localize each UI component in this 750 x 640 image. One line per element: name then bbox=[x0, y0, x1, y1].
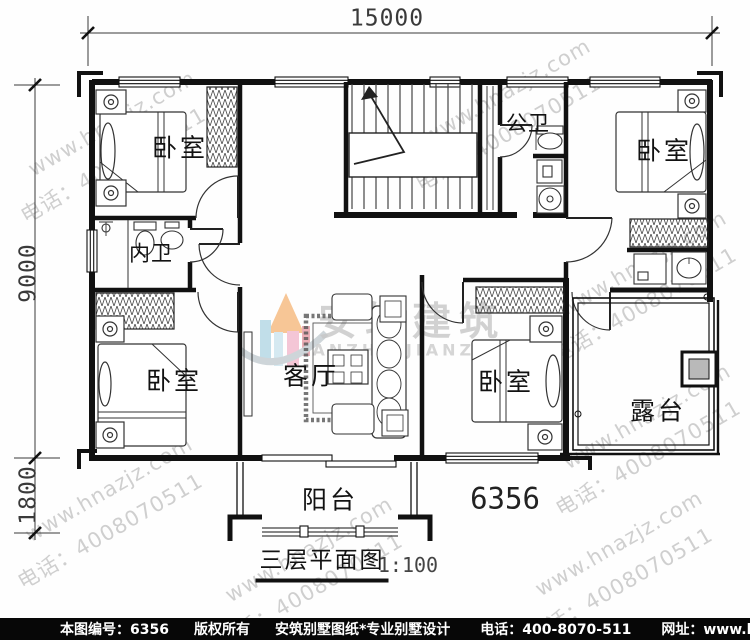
room-label-bedroom-mid-left: 卧室 bbox=[146, 369, 202, 394]
footer-copyright: 版权所有 bbox=[194, 619, 250, 639]
footer-studio: 安筑别墅图纸*专业别墅设计 bbox=[275, 619, 450, 639]
plan-number: 6356 bbox=[470, 485, 540, 514]
footer-doc-number: 本图编号：6356 bbox=[60, 619, 169, 639]
footer-website: 网址：www.hnazjz.com bbox=[661, 619, 750, 639]
room-label-bath-public: 公卫 bbox=[506, 114, 550, 135]
room-label-bedroom-top-left: 卧室 bbox=[152, 136, 208, 161]
footer-phone: 电话：400-8070-511 bbox=[480, 619, 631, 639]
dimension-left-height: 9000 bbox=[18, 243, 41, 302]
label-layer: 15000 9000 1800 卧室 内卫 公卫 卧室 卧室 客厅 卧室 露台 … bbox=[0, 0, 750, 640]
room-label-bath-inner: 内卫 bbox=[129, 244, 173, 265]
floor-plan-page: www.hnazjz.com 电话：4008070511 www.hnazjz.… bbox=[0, 0, 750, 640]
plan-scale: 1:100 bbox=[378, 555, 438, 575]
room-label-terrace: 露台 bbox=[630, 399, 686, 424]
footer-bar: 本图编号：6356 版权所有 安筑别墅图纸*专业别墅设计 电话：400-8070… bbox=[0, 618, 750, 640]
room-label-balcony: 阳台 bbox=[302, 488, 358, 513]
room-label-bedroom-top-right: 卧室 bbox=[636, 139, 692, 164]
plan-title: 三层平面图 bbox=[256, 550, 389, 583]
dimension-left-lower: 1800 bbox=[18, 465, 41, 524]
room-label-living-room: 客厅 bbox=[283, 364, 339, 389]
room-label-bedroom-bottom-right: 卧室 bbox=[478, 370, 534, 395]
dimension-top-width: 15000 bbox=[350, 8, 424, 31]
